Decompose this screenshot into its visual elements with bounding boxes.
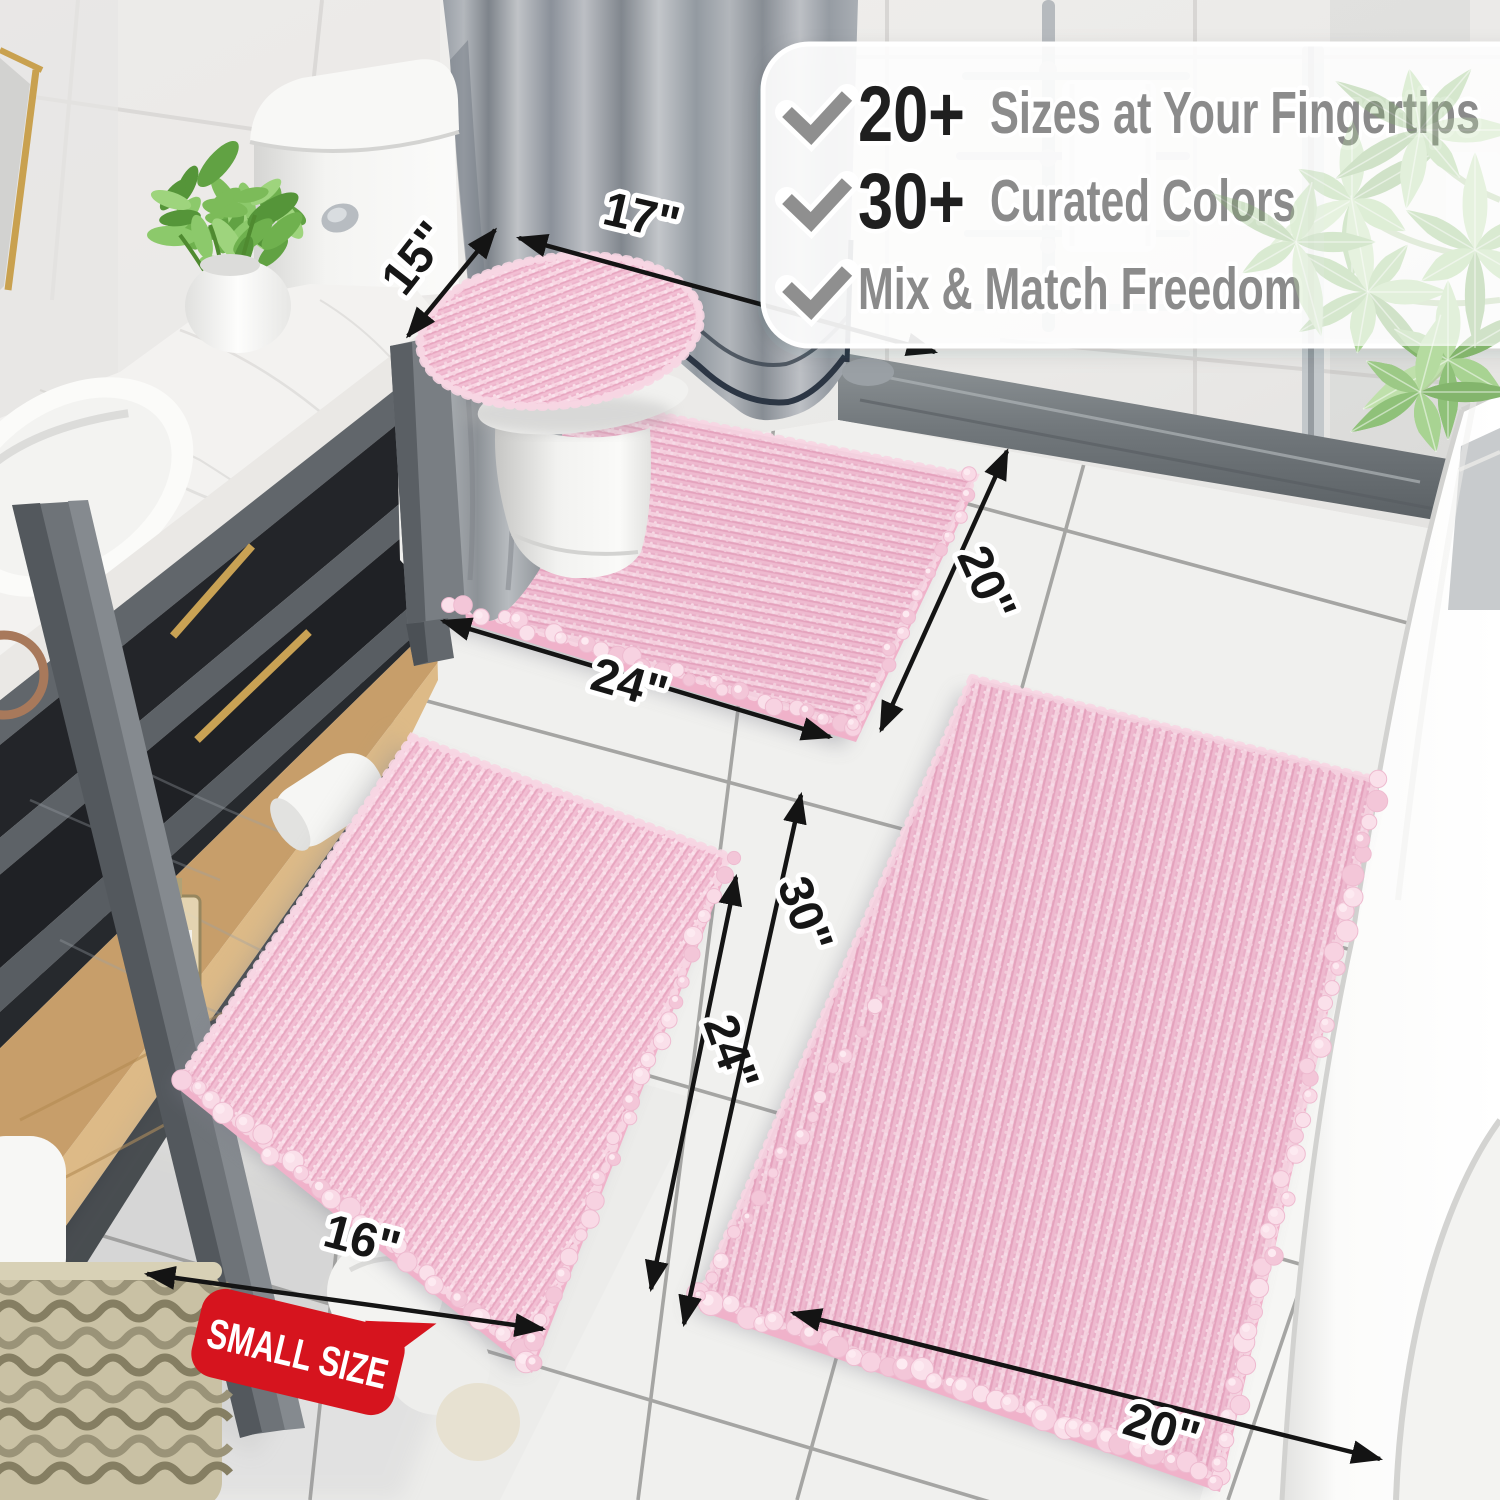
svg-text:30+: 30+ xyxy=(858,156,965,245)
svg-text:20+: 20+ xyxy=(858,69,965,158)
svg-text:Mix & Match Freedom: Mix & Match Freedom xyxy=(858,256,1302,322)
